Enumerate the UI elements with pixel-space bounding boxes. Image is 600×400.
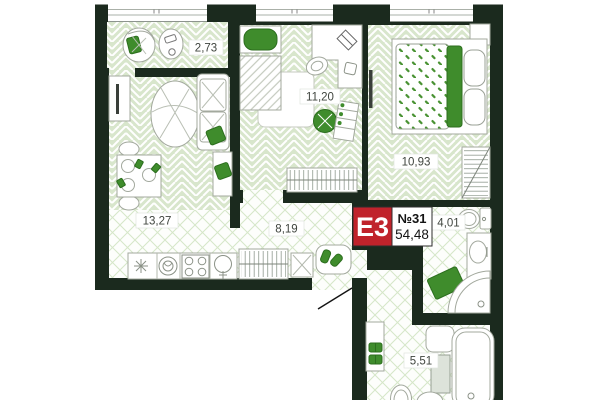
window-sill-strip <box>95 0 503 5</box>
unit-total-area: 54,48 <box>395 227 429 242</box>
dining-chair <box>119 196 139 210</box>
floor-plan: 2,73 11,20 10,93 13,27 8,19 4,01 5,51 <box>0 0 600 400</box>
hallway-wall-stub <box>230 195 240 228</box>
hall-wardrobe <box>239 249 288 279</box>
area-label-bedroom-master: 10,93 <box>394 154 438 169</box>
tv-console <box>109 76 130 121</box>
kids-room-door-opening <box>243 190 283 203</box>
pencil-cup <box>344 62 357 75</box>
plate <box>122 160 135 173</box>
entrance-door-swing <box>318 288 352 309</box>
balcony-window <box>108 5 207 22</box>
towel-shelf <box>366 322 384 371</box>
kids-room-window <box>256 5 333 22</box>
area-label-bathroom: 5,51 <box>404 353 438 368</box>
entrance-opening <box>312 278 352 290</box>
master-room-window <box>390 5 473 22</box>
bed-headboard <box>447 46 462 127</box>
pillow <box>464 89 485 125</box>
area-label-balcony: 2,73 <box>189 40 223 55</box>
area-value: 10,93 <box>402 157 431 169</box>
unit-type-label: E3 <box>356 212 389 242</box>
area-value: 2,73 <box>195 43 217 55</box>
tv <box>116 84 119 114</box>
bathtub <box>452 328 494 400</box>
dining-chair <box>119 142 139 156</box>
cabinet <box>426 326 454 352</box>
area-value: 11,20 <box>306 92 334 104</box>
bed-blanket <box>396 44 449 129</box>
unit-number: №31 <box>398 211 427 226</box>
hall-corridor-opening <box>352 250 367 278</box>
cup-icon <box>169 49 175 55</box>
crib-mattress <box>244 29 277 50</box>
wardrobe <box>462 147 490 198</box>
washing-machine-icon <box>159 257 177 275</box>
windows <box>95 0 503 22</box>
tv <box>369 70 373 108</box>
area-label-bedroom-kids: 11,20 <box>300 89 340 104</box>
area-label-kitchen-living: 13,27 <box>136 213 178 228</box>
pillow <box>464 50 485 86</box>
area-value: 8,19 <box>275 224 297 236</box>
single-bed <box>240 56 281 110</box>
floor-plan-page: 2,73 11,20 10,93 13,27 8,19 4,01 5,51 <box>0 0 600 400</box>
kitchen-counter <box>128 253 237 279</box>
area-label-hallway: 8,19 <box>269 221 304 236</box>
unit-badge: E3 №31 54,48 <box>353 207 432 246</box>
area-value: 13,27 <box>143 216 172 228</box>
round-bed <box>151 81 199 147</box>
area-label-wc: 4,01 <box>432 215 465 230</box>
area-value: 5,51 <box>410 356 432 368</box>
area-value: 4,01 <box>437 218 459 230</box>
dresser <box>287 168 357 192</box>
fridge-icon <box>134 259 148 273</box>
